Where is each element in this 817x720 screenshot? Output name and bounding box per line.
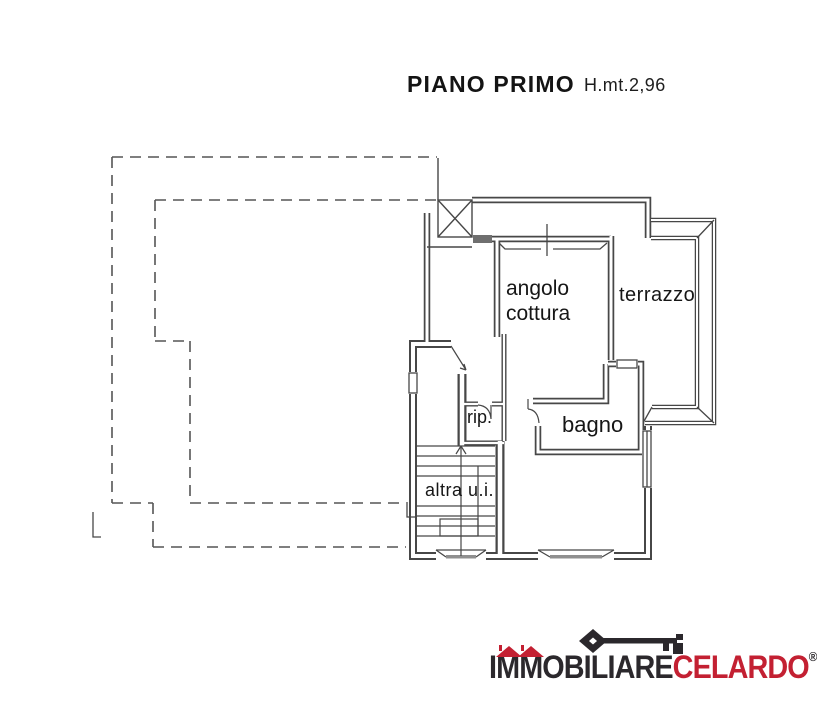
window-openings: [408, 359, 653, 560]
walls: [413, 200, 714, 556]
chimney-icon: [521, 645, 524, 651]
wall-fill-segment: [473, 235, 492, 243]
room-label-rip: rip.: [467, 407, 492, 428]
logo-brand-secondary: CELARDO: [673, 649, 809, 685]
dashed-outline: [112, 157, 437, 547]
height-label: H.mt.2,96: [584, 75, 666, 96]
registered-trademark-icon: ®: [809, 649, 817, 664]
parapet-miters: [643, 220, 714, 423]
plan-marks: [93, 502, 416, 537]
room-label-bagno: bagno: [562, 412, 623, 437]
floor-plan-drawing: [0, 0, 817, 720]
page-title: PIANO PRIMO: [407, 71, 575, 98]
chimney-icon: [499, 645, 502, 651]
agency-logo: IMMOBILIARECELARDO®: [487, 622, 807, 692]
shaft-x-symbol: [427, 158, 472, 247]
floor-plan-page: PIANO PRIMO H.mt.2,96 angolo cottura ter…: [0, 0, 817, 720]
room-label-altra-ui: altra u.i.: [425, 480, 494, 501]
windows: [409, 224, 651, 557]
room-label-terrazzo: terrazzo: [619, 284, 695, 307]
room-label-angolo-cottura: angolo cottura: [506, 276, 570, 326]
stairs: [417, 446, 495, 556]
